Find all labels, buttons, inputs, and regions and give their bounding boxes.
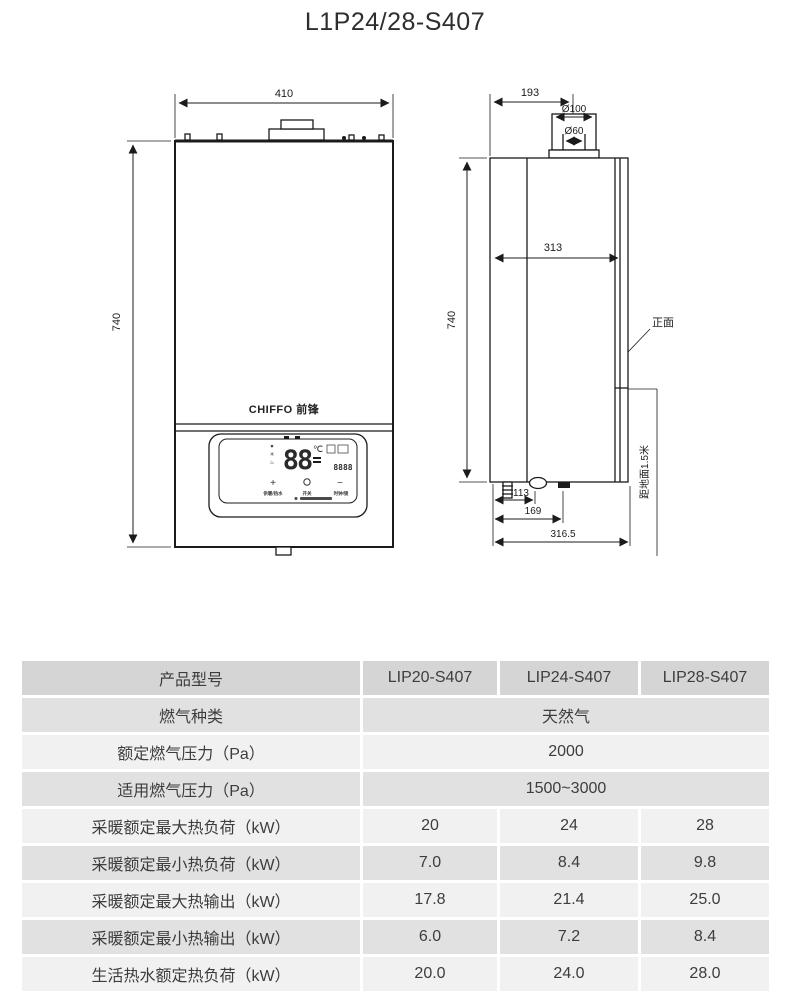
flue-flange: [549, 150, 599, 158]
heat-icon: ♥: [270, 444, 273, 450]
small-print-mark: [295, 497, 298, 500]
spec-value-cell: LIP28-S407: [641, 661, 769, 695]
lcd-temperature: 88: [283, 445, 312, 476]
spec-label-cell: 产品型号: [22, 661, 360, 695]
spec-value-cell: 天然气: [363, 698, 769, 732]
side-dim-bottom2: 169: [525, 506, 542, 517]
spec-value-cell: 1500~3000: [363, 772, 769, 806]
minus-button[interactable]: −: [337, 478, 343, 489]
spec-value-cell: 28.0: [641, 957, 769, 991]
side-dim-depth: 313: [544, 242, 562, 254]
spec-value-cell: 21.4: [500, 883, 638, 917]
spec-table: 产品型号 LIP20-S407 LIP24-S407 LIP28-S407 燃气…: [19, 658, 772, 994]
spec-row-min-heat-output: 采暖额定最小热输出（kW） 6.0 7.2 8.4: [22, 920, 769, 954]
front-dim-height: 740: [111, 313, 123, 331]
spec-value-cell: 7.0: [363, 846, 497, 880]
spec-label-cell: 燃气种类: [22, 698, 360, 732]
spec-value-cell: 17.8: [363, 883, 497, 917]
side-dim-bottom1: 113: [513, 488, 529, 499]
spec-value-cell: 24: [500, 809, 638, 843]
button-label-mid: 开关: [303, 490, 312, 497]
side-view-drawing: 193 Ø100 Ø60 313 740 正面 距地面1.5米: [446, 87, 674, 556]
spec-label-cell: 适用燃气压力（Pa）: [22, 772, 360, 806]
spec-value-cell: LIP24-S407: [500, 661, 638, 695]
control-panel: ♥ ✳ ♨ 88 ℃ 8888 + − 供暖/热水 开关 时钟/锁: [209, 434, 367, 517]
snow-icon: ✳: [270, 451, 275, 458]
brand-logo: CHIFFO 前锋: [249, 402, 320, 416]
spec-value-cell: 2000: [363, 735, 769, 769]
spec-value-cell: 20.0: [363, 957, 497, 991]
spec-label-cell: 采暖额定最小热负荷（kW）: [22, 846, 360, 880]
side-dim-bottom3: 316.5: [550, 529, 575, 540]
celsius-unit: ℃: [313, 444, 323, 454]
spec-value-cell: LIP20-S407: [363, 661, 497, 695]
technical-drawings: 410 740 CHIFFO 前锋 ♥ ✳ ♨: [0, 0, 790, 620]
button-label-left: 供暖/热水: [262, 490, 283, 497]
spec-label-cell: 采暖额定最小热输出（kW）: [22, 920, 360, 954]
button-label-right: 时钟/锁: [334, 490, 349, 497]
flue-inner-dim: Ø60: [565, 126, 584, 137]
spec-value-cell: 8.4: [641, 920, 769, 954]
hotwater-icon: ♨: [270, 459, 275, 466]
spec-value-cell: 20: [363, 809, 497, 843]
spec-row-model: 产品型号 LIP20-S407 LIP24-S407 LIP28-S407: [22, 661, 769, 695]
spec-value-cell: 8.4: [500, 846, 638, 880]
spec-label-cell: 额定燃气压力（Pa）: [22, 735, 360, 769]
spec-label-cell: 采暖额定最大热输出（kW）: [22, 883, 360, 917]
spec-row-gas-type: 燃气种类 天然气: [22, 698, 769, 732]
spec-row-dhw-heat-input: 生活热水额定热负荷（kW） 20.0 24.0 28.0: [22, 957, 769, 991]
spec-row-applicable-pressure: 适用燃气压力（Pa） 1500~3000: [22, 772, 769, 806]
front-view-drawing: 410 740 CHIFFO 前锋 ♥ ✳ ♨: [111, 88, 393, 555]
spec-row-max-heat-input: 采暖额定最大热负荷（kW） 20 24 28: [22, 809, 769, 843]
flue-cap-base: [269, 129, 324, 140]
side-dim-top: 193: [521, 87, 539, 99]
flue-cap-top: [281, 120, 313, 129]
front-dim-width: 410: [275, 88, 293, 100]
spec-value-cell: 6.0: [363, 920, 497, 954]
spec-value-cell: 9.8: [641, 846, 769, 880]
spec-value-cell: 24.0: [500, 957, 638, 991]
spec-row-rated-pressure: 额定燃气压力（Pa） 2000: [22, 735, 769, 769]
spec-value-cell: 7.2: [500, 920, 638, 954]
small-print-line: [300, 497, 332, 500]
spec-label-cell: 生活热水额定热负荷（kW）: [22, 957, 360, 991]
spec-label-cell: 采暖额定最大热负荷（kW）: [22, 809, 360, 843]
flue-outer-dim: Ø100: [562, 104, 587, 115]
plus-button[interactable]: +: [270, 478, 276, 489]
boiler-side-body: [490, 158, 628, 482]
ground-distance-label: 距地面1.5米: [638, 445, 651, 499]
spec-value-cell: 25.0: [641, 883, 769, 917]
bottom-tab: [276, 547, 291, 555]
spec-row-min-heat-input: 采暖额定最小热负荷（kW） 7.0 8.4 9.8: [22, 846, 769, 880]
side-dim-height: 740: [446, 311, 458, 329]
spec-row-max-heat-output: 采暖额定最大热输出（kW） 17.8 21.4 25.0: [22, 883, 769, 917]
front-face-label: 正面: [652, 317, 674, 329]
lcd-sub-digits: 8888: [333, 463, 352, 472]
spec-value-cell: 28: [641, 809, 769, 843]
